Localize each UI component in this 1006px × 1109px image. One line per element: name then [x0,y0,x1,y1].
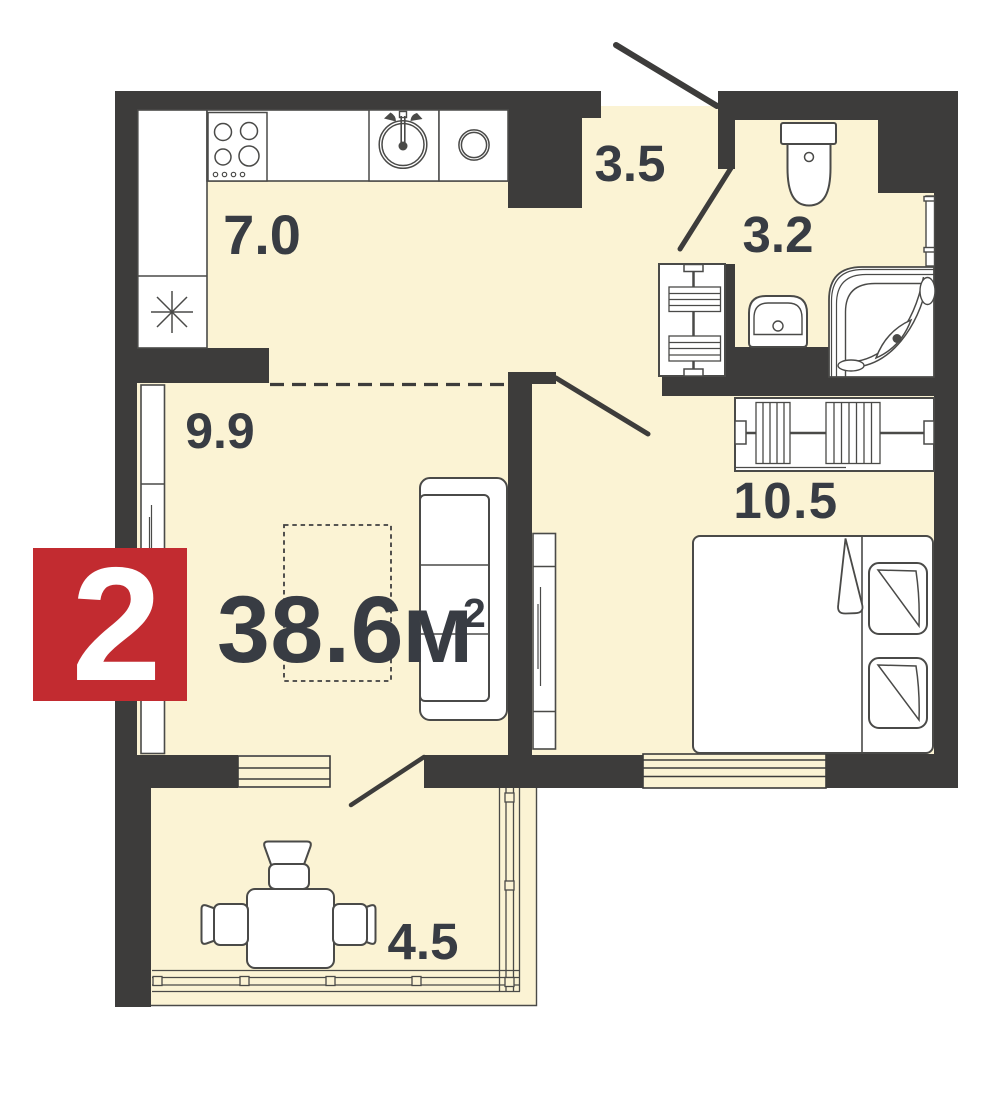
svg-text:4.5: 4.5 [388,913,459,970]
svg-text:38.6: 38.6 [217,577,404,683]
svg-text:3.5: 3.5 [595,135,666,192]
svg-text:2: 2 [71,534,161,715]
svg-text:10.5: 10.5 [733,472,838,529]
svg-text:2: 2 [463,590,486,636]
svg-text:9.9: 9.9 [185,403,255,459]
svg-text:3.2: 3.2 [743,206,814,263]
svg-text:7.0: 7.0 [223,203,301,266]
